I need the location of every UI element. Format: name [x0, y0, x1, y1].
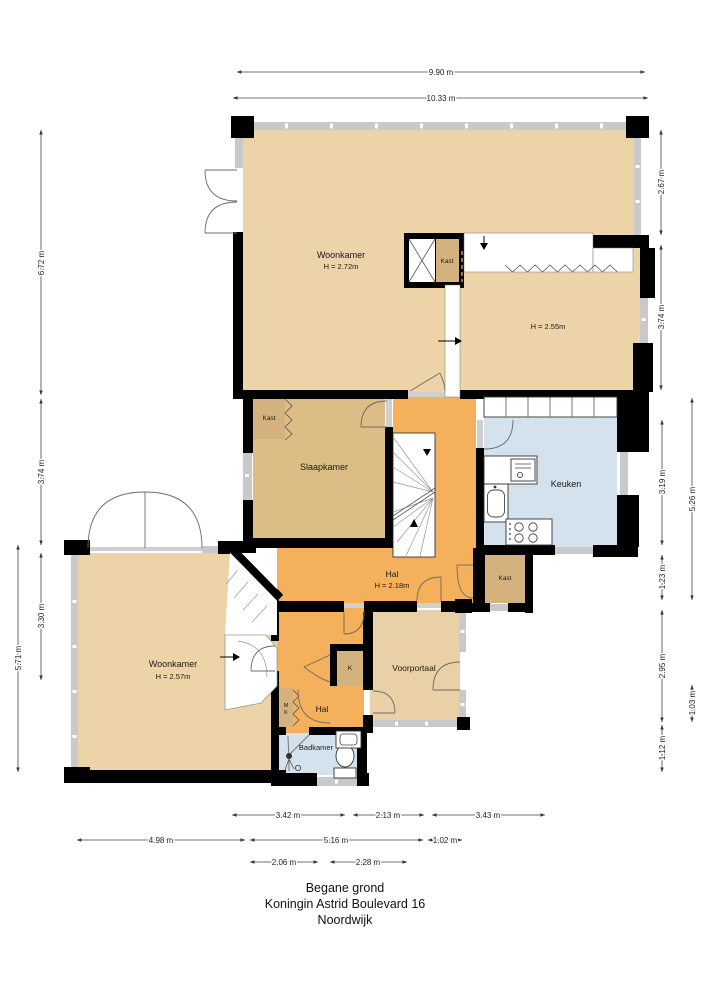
plan-title-floor: Begane grond [306, 881, 385, 895]
dim-left-3: 3.30 m [37, 603, 46, 628]
closet-band [464, 233, 593, 272]
dim-left-2: 3.74 m [37, 459, 46, 484]
window-kast-lower [490, 604, 508, 611]
label-hal-center: Hal [386, 569, 399, 579]
label-meterkast-m: M [284, 703, 289, 709]
label-kast-slaapkamer: Kast [262, 415, 275, 422]
label-hal-lower: Hal [316, 704, 329, 714]
dim-bottom-1-3: 3.43 m [476, 811, 501, 820]
plan-title-address: Koningin Astrid Boulevard 16 [265, 897, 426, 911]
corner-column [64, 540, 90, 555]
dim-top-outer: 10.33 m [427, 94, 456, 103]
corner-column [626, 116, 649, 138]
dim-right-5: 2.95 m [658, 653, 667, 678]
label-meterkast-k: K [284, 710, 288, 716]
dim-bottom-3-1: 2.06 m [272, 858, 297, 867]
label-voorportaal: Voorportaal [392, 663, 436, 673]
toilet-icon [334, 745, 356, 778]
label-k-closet: K [348, 665, 353, 672]
window-keuken-right [620, 452, 628, 495]
sink-icon [484, 484, 508, 522]
dim-bottom-2-1: 4.98 m [149, 836, 174, 845]
dim-bottom-2-2: 5.16 m [324, 836, 349, 845]
label-hal-height: H = 2.18m [375, 581, 410, 590]
label-kast-top: Kast [440, 258, 453, 265]
staircase [393, 433, 435, 557]
label-woonkamer-top-height: H = 2.72m [324, 262, 359, 271]
dim-right-6: 1.12 m [658, 735, 667, 760]
dim-left-1: 6.72 m [37, 250, 46, 275]
steps-to-living-room [220, 550, 280, 710]
floorplan-page: Woonkamer H = 2.72m H = 2.55m Kast Kast … [0, 0, 707, 1000]
label-woonkamer-lower: Woonkamer [149, 659, 197, 669]
room-hal-area [393, 397, 476, 435]
dim-right-outer-bottom: 1.03 m [688, 690, 697, 715]
dim-right-2: 3.74 m [657, 304, 666, 329]
dim-bottom-1-1: 3.42 m [276, 811, 301, 820]
dim-bottom-2-3: 1.02 m [433, 836, 458, 845]
label-kast-lower: Kast [498, 575, 511, 582]
washbasin-icon [336, 731, 361, 748]
kitchen-cabinets [484, 397, 617, 417]
dim-top-inner: 9.90 m [429, 68, 454, 77]
dim-bottom-3-2: 2.28 m [356, 858, 381, 867]
title-block: Begane grond Koningin Astrid Boulevard 1… [265, 881, 426, 927]
dishwasher-icon [484, 456, 537, 484]
label-woonkamer-top: Woonkamer [317, 250, 365, 260]
floorplan-drawing: Woonkamer H = 2.72m H = 2.55m Kast Kast … [0, 0, 707, 1000]
room-hal-area-2 [435, 433, 476, 557]
label-keuken: Keuken [551, 479, 582, 489]
corner-column [231, 116, 254, 138]
dim-bottom-1-2: 2.13 m [376, 811, 401, 820]
dim-right-outer-top: 5.26 m [688, 486, 697, 511]
dim-left-outer: 5.71 m [14, 645, 23, 670]
label-room-right-height: H = 2.55m [531, 322, 566, 331]
dim-right-4: 1.23 m [658, 564, 667, 589]
label-badkamer: Badkamer [299, 743, 334, 752]
plan-title-city: Noordwijk [318, 913, 374, 927]
dim-right-3: 3.19 m [658, 469, 667, 494]
room-hal-area-3 [277, 548, 472, 603]
dim-right-1: 2.67 m [657, 169, 666, 194]
label-woonkamer-lower-height: H = 2.57m [156, 672, 191, 681]
stove-icon [506, 519, 552, 545]
label-slaapkamer: Slaapkamer [300, 462, 348, 472]
window-keuken-bottom [555, 547, 593, 554]
